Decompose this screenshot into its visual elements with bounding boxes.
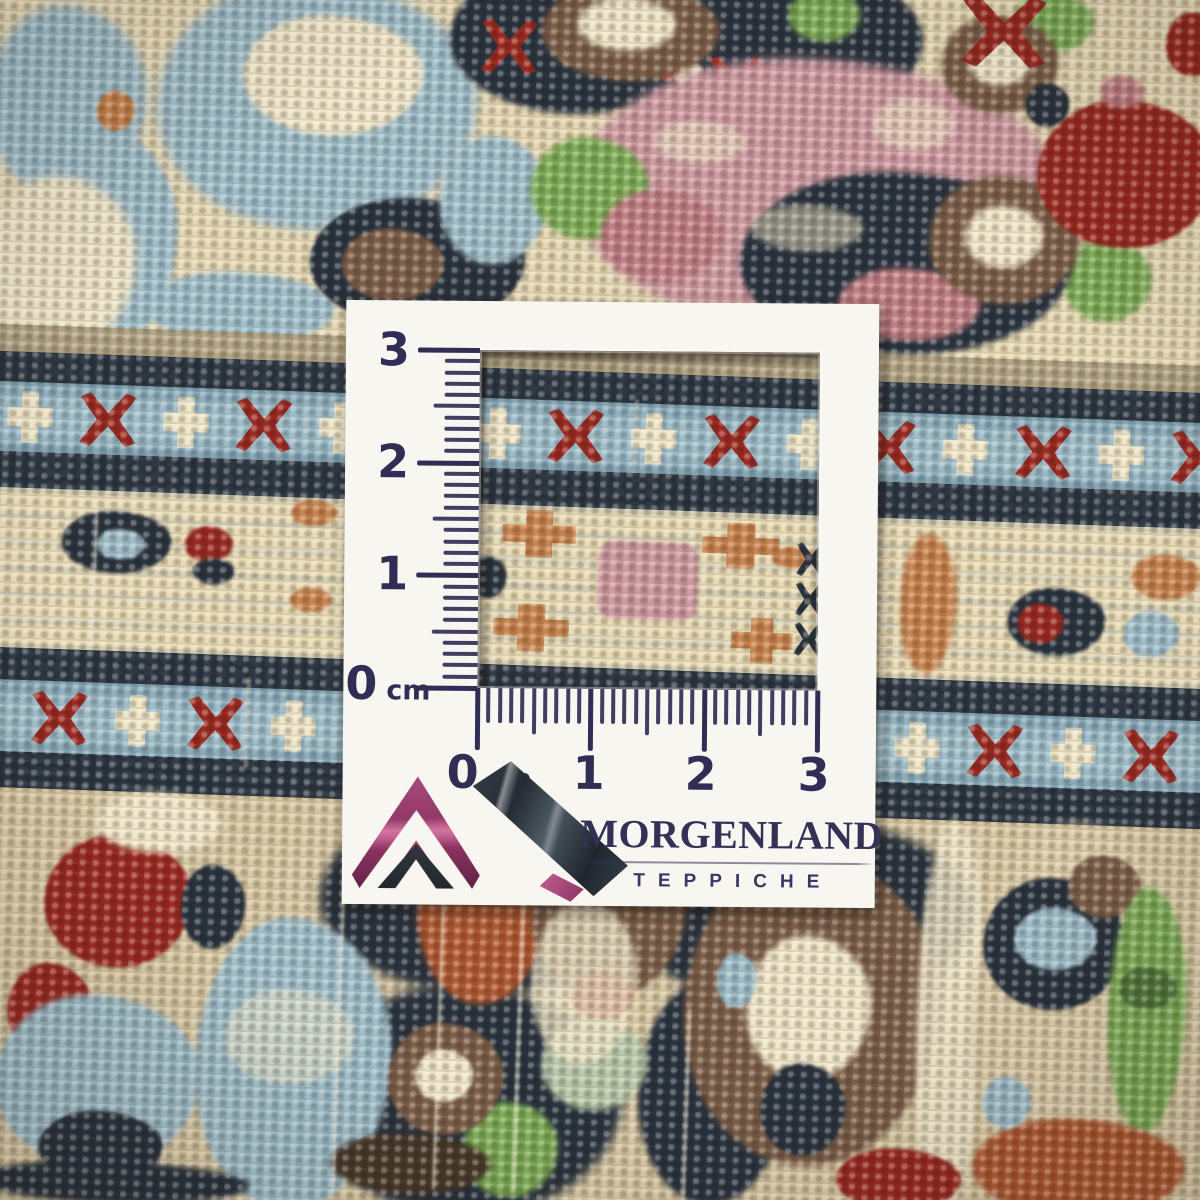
ruler-tick — [433, 517, 479, 521]
measuring-card: 3 2 1 0 cm 0 cm 1 2 3 MORGENLAND TEPPICH… — [342, 300, 880, 908]
carpet-motif — [235, 397, 293, 453]
ruler-tick — [792, 690, 796, 725]
ruler-tick — [713, 690, 717, 725]
logo-magenta-peak-icon — [352, 776, 481, 889]
ruler-tick — [444, 427, 479, 431]
carpet-motif — [1122, 610, 1180, 658]
carpet-motif — [192, 558, 235, 585]
ruler-tick — [444, 472, 479, 476]
ruler-tick — [443, 550, 478, 554]
ruler-tick — [418, 347, 480, 352]
ruler-tick — [443, 618, 478, 622]
carpet-motif — [289, 587, 332, 612]
carpet-motif — [180, 864, 247, 950]
carpet-motif — [6, 390, 54, 444]
ruler-tick — [444, 494, 479, 498]
carpet-motif — [942, 423, 990, 477]
ruler-tick — [445, 381, 480, 385]
vertical-ruler — [343, 349, 480, 688]
brand-name: MORGENLAND — [580, 810, 876, 859]
carpet-motif — [966, 723, 1024, 779]
ruler-tick — [434, 404, 480, 408]
ruler-tick — [443, 641, 478, 645]
carpet-motif — [79, 392, 137, 448]
ruler-tick — [679, 690, 683, 725]
carpet-motif — [0, 1157, 250, 1200]
horizontal-ruler — [477, 688, 817, 753]
vruler-label-2: 2 — [345, 438, 409, 485]
ruler-tick — [486, 688, 490, 723]
ruler-tick — [634, 689, 638, 724]
hruler-label-3: 3 — [793, 751, 833, 797]
carpet-motif — [187, 696, 245, 752]
carpet-motif — [31, 690, 89, 746]
carpet-motif — [1122, 728, 1180, 784]
carpet-motif — [290, 499, 337, 527]
carpet-motif — [1097, 428, 1145, 482]
ruler-tick — [443, 562, 478, 566]
brand-divider — [582, 861, 874, 865]
ruler-tick — [770, 690, 774, 725]
ruler-tick — [532, 688, 536, 734]
carpet-motif — [162, 396, 210, 450]
ruler-tick — [445, 393, 480, 397]
ruler-tick — [577, 689, 581, 724]
vruler-label-3: 3 — [346, 326, 410, 373]
hruler-label-2: 2 — [680, 751, 720, 797]
ruler-tick — [645, 689, 649, 735]
vruler-unit: cm — [386, 677, 430, 704]
ruler-tick — [724, 690, 728, 725]
carpet-motif — [898, 533, 959, 675]
ruler-tick — [509, 688, 513, 723]
ruler-tick — [690, 690, 694, 725]
ruler-tick — [611, 689, 615, 724]
ruler-tick — [443, 652, 478, 656]
brand-subtitle: TEPPICHE — [590, 870, 876, 894]
vruler-label-1: 1 — [344, 550, 408, 597]
ruler-tick — [432, 629, 478, 633]
ruler-tick — [622, 689, 626, 724]
ruler-tick — [417, 460, 479, 465]
ruler-tick — [416, 573, 478, 578]
ruler-tick — [443, 607, 478, 611]
ruler-tick — [443, 596, 478, 600]
ruler-tick — [445, 370, 480, 374]
ruler-tick — [444, 415, 479, 419]
ruler-tick — [758, 690, 762, 736]
carpet-motif — [1130, 554, 1200, 601]
ruler-tick — [600, 689, 604, 724]
ruler-tick — [804, 691, 808, 726]
ruler-tick — [543, 688, 547, 723]
carpet-motif — [1165, 11, 1200, 77]
ruler-tick — [444, 505, 479, 509]
card-window-cutout — [477, 350, 820, 691]
ruler-tick — [656, 689, 660, 724]
ruler-tick — [443, 539, 478, 543]
brand-block: MORGENLAND TEPPICHE — [580, 810, 877, 894]
ruler-tick — [781, 690, 785, 725]
ruler-tick — [444, 449, 479, 453]
ruler-tick — [554, 689, 558, 724]
ruler-tick — [444, 528, 479, 532]
ruler-tick — [566, 689, 570, 724]
ruler-tick — [736, 690, 740, 725]
ruler-tick — [701, 690, 706, 752]
ruler-tick — [498, 688, 502, 723]
ruler-tick — [668, 689, 672, 724]
ruler-tick — [445, 359, 480, 363]
vruler-zero-digit: 0 — [345, 660, 377, 706]
ruler-tick — [815, 691, 820, 753]
ruler-tick — [588, 689, 593, 751]
carpet-photo: 3 2 1 0 cm 0 cm 1 2 3 MORGENLAND TEPPICH… — [0, 0, 1200, 1200]
ruler-tick — [444, 483, 479, 487]
ruler-tick — [520, 688, 524, 723]
carpet-motif — [1170, 430, 1200, 486]
carpet-motif — [270, 700, 318, 754]
carpet-motif — [893, 721, 941, 775]
ruler-tick — [747, 690, 751, 725]
carpet-motif — [1049, 727, 1097, 781]
carpet-motif — [42, 833, 195, 970]
ruler-tick — [444, 438, 479, 442]
ruler-tick — [475, 688, 480, 750]
vruler-label-0: 0 cm — [345, 660, 475, 707]
ruler-tick — [443, 584, 478, 588]
carpet-motif — [1014, 424, 1072, 480]
carpet-motif — [114, 694, 162, 748]
